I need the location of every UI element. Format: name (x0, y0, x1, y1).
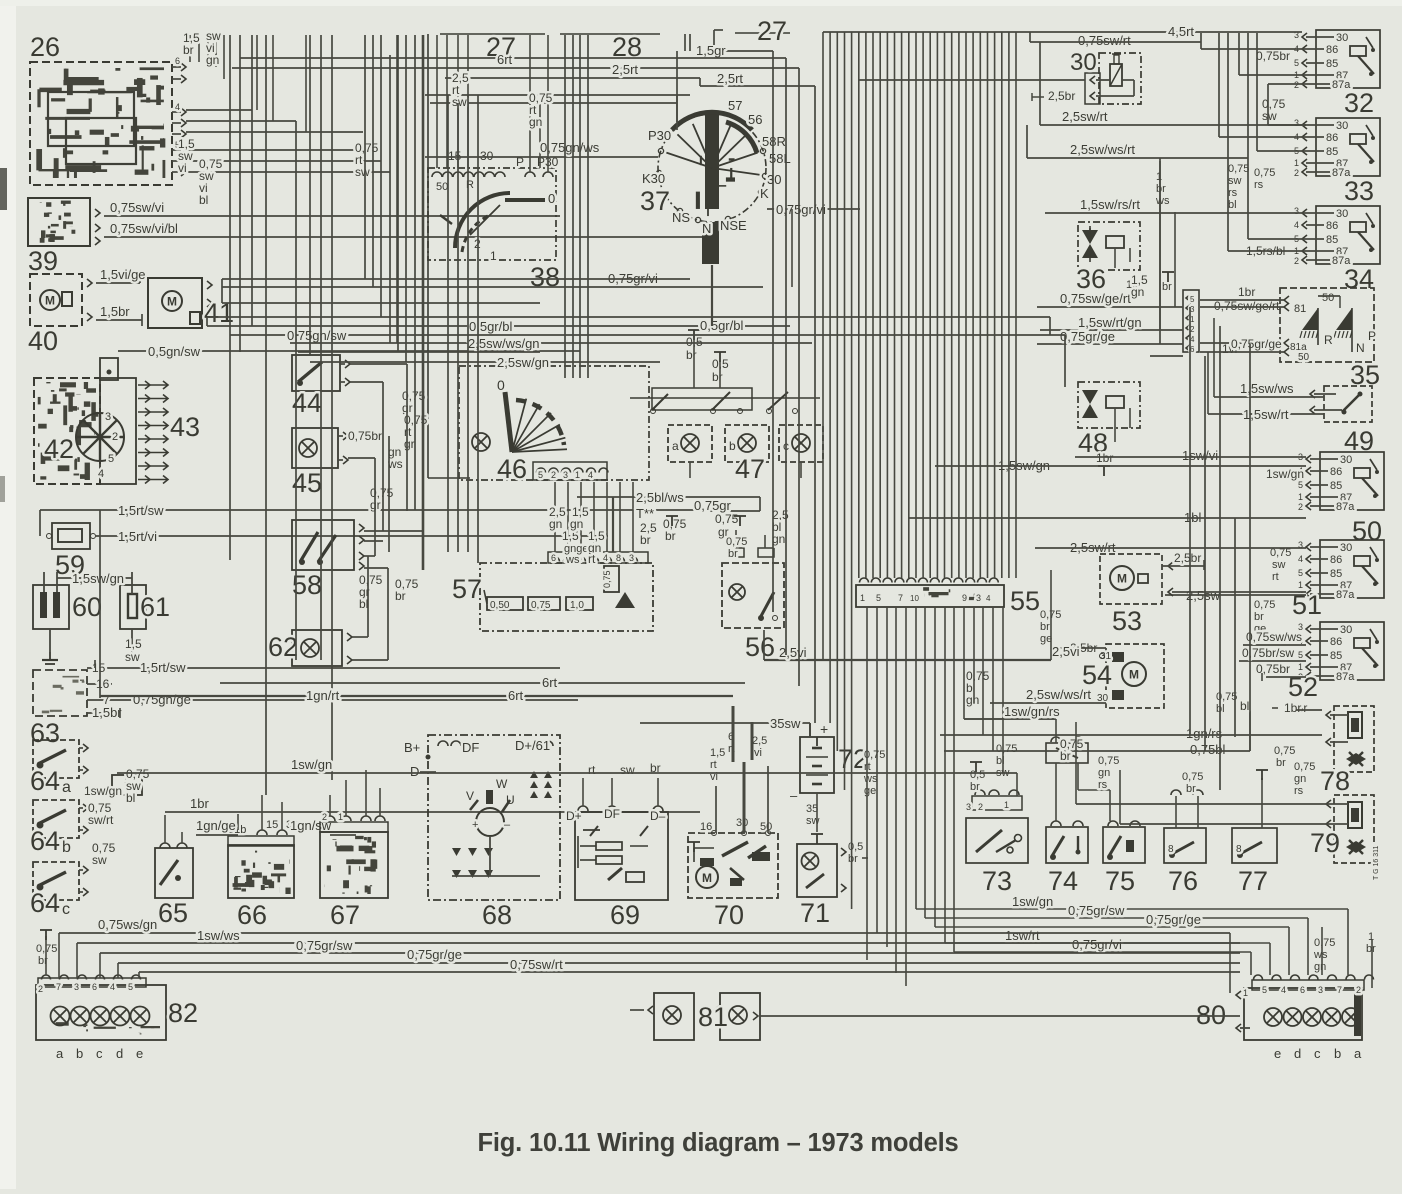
svg-text:D+/61: D+/61 (515, 738, 550, 753)
svg-text:3: 3 (966, 802, 971, 812)
svg-text:+: + (820, 721, 828, 737)
svg-text:64: 64 (30, 826, 60, 856)
svg-text:1: 1 (1298, 580, 1303, 590)
svg-text:64: 64 (30, 888, 60, 918)
svg-text:sw: sw (125, 650, 140, 664)
svg-text:1: 1 (490, 249, 497, 263)
svg-text:bl: bl (199, 193, 208, 207)
svg-text:br: br (395, 589, 406, 603)
svg-text:74: 74 (1048, 866, 1078, 896)
svg-text:77: 77 (1238, 866, 1268, 896)
svg-text:2,5bl/ws: 2,5bl/ws (636, 490, 684, 505)
svg-text:1,5rt/sw: 1,5rt/sw (140, 660, 186, 675)
svg-text:86: 86 (1326, 220, 1338, 232)
svg-text:rs: rs (1294, 785, 1304, 797)
svg-text:ws: ws (1313, 949, 1328, 961)
svg-text:53: 53 (1112, 606, 1142, 636)
svg-text:0,75: 0,75 (1228, 163, 1249, 175)
svg-text:30: 30 (736, 817, 748, 829)
svg-text:+: + (472, 819, 478, 831)
svg-text:87a: 87a (1336, 671, 1355, 683)
svg-text:gn: gn (1314, 961, 1326, 973)
svg-text:ws: ws (863, 773, 878, 785)
svg-text:0,75ws/gn: 0,75ws/gn (98, 917, 157, 932)
svg-text:33: 33 (1344, 176, 1374, 206)
svg-text:1: 1 (338, 812, 343, 822)
svg-text:4: 4 (110, 982, 115, 992)
svg-text:87a: 87a (1336, 501, 1355, 513)
svg-text:85: 85 (1330, 480, 1342, 492)
svg-text:4: 4 (1294, 220, 1299, 230)
svg-text:10: 10 (910, 594, 919, 603)
svg-text:1,0: 1,0 (570, 600, 584, 611)
svg-text:a: a (1354, 1046, 1362, 1061)
svg-text:DF: DF (462, 740, 479, 755)
svg-text:15: 15 (92, 661, 106, 675)
svg-text:8: 8 (1168, 844, 1174, 855)
svg-text:br: br (1156, 183, 1166, 195)
svg-text:1,5rt/vi: 1,5rt/vi (118, 529, 157, 544)
svg-text:br: br (1366, 943, 1376, 955)
svg-text:86: 86 (1330, 554, 1342, 566)
svg-text:rt: rt (1272, 571, 1279, 583)
svg-text:1sw/gn: 1sw/gn (1012, 894, 1053, 909)
svg-text:M: M (167, 295, 177, 309)
svg-text:gn: gn (966, 693, 979, 707)
svg-text:d: d (1294, 1046, 1301, 1061)
svg-text:P: P (1368, 329, 1376, 343)
svg-text:16: 16 (700, 821, 712, 833)
svg-text:e: e (1274, 1046, 1281, 1061)
svg-text:0,75: 0,75 (726, 536, 747, 548)
svg-text:55: 55 (1010, 586, 1040, 616)
svg-text:1: 1 (1156, 171, 1162, 183)
svg-text:rs: rs (1254, 179, 1264, 191)
svg-text:16: 16 (96, 677, 110, 691)
svg-text:0,75br: 0,75br (1256, 49, 1290, 63)
svg-text:50: 50 (436, 181, 448, 193)
svg-text:1,5sw/rs/rt: 1,5sw/rs/rt (1080, 197, 1140, 212)
svg-text:1,5vi/ge: 1,5vi/ge (100, 267, 146, 282)
svg-text:b: b (729, 439, 736, 453)
svg-text:b: b (76, 1046, 83, 1061)
svg-text:1sw/ws: 1sw/ws (197, 928, 240, 943)
svg-text:39: 39 (28, 246, 58, 276)
svg-text:27: 27 (757, 16, 787, 46)
svg-text:D+: D+ (566, 809, 582, 823)
svg-text:30: 30 (767, 172, 781, 187)
svg-text:N: N (1356, 341, 1365, 355)
svg-text:rt: rt (588, 763, 596, 777)
svg-text:br: br (970, 781, 980, 793)
svg-text:63: 63 (30, 718, 60, 748)
svg-text:58R: 58R (762, 134, 786, 149)
svg-text:0,5: 0,5 (848, 841, 863, 853)
svg-text:2: 2 (1298, 502, 1303, 512)
svg-text:ws: ws (1155, 195, 1170, 207)
svg-text:86: 86 (1326, 44, 1338, 56)
svg-text:85: 85 (1330, 650, 1342, 662)
svg-text:2: 2 (1294, 168, 1299, 178)
svg-text:1sw/gn: 1sw/gn (291, 757, 332, 772)
svg-text:R: R (1324, 333, 1333, 347)
svg-text:1: 1 (860, 593, 865, 603)
svg-text:64: 64 (30, 766, 60, 796)
svg-text:3: 3 (1294, 206, 1299, 216)
svg-text:69: 69 (610, 900, 640, 930)
svg-text:0: 0 (548, 191, 555, 206)
svg-text:1: 1 (1298, 492, 1303, 502)
svg-text:sw: sw (1272, 559, 1286, 571)
svg-text:85: 85 (1326, 58, 1338, 70)
svg-text:0,75sw/rt: 0,75sw/rt (1078, 33, 1131, 48)
svg-text:8: 8 (616, 553, 621, 563)
svg-text:56: 56 (745, 632, 775, 662)
svg-text:ws: ws (565, 554, 580, 566)
svg-text:57: 57 (728, 98, 742, 113)
svg-text:4: 4 (603, 553, 608, 563)
svg-text:D: D (410, 764, 419, 779)
svg-text:NSE: NSE (720, 218, 747, 233)
svg-text:82: 82 (168, 998, 198, 1028)
svg-text:gn: gn (206, 53, 219, 67)
svg-text:30: 30 (1336, 120, 1348, 132)
svg-text:6: 6 (175, 56, 180, 66)
svg-text:71: 71 (800, 898, 830, 928)
svg-text:5: 5 (1190, 295, 1195, 304)
svg-text:2,5sw/rt: 2,5sw/rt (1062, 109, 1108, 124)
svg-text:57: 57 (452, 574, 482, 604)
svg-text:rt: rt (710, 759, 717, 771)
svg-text:0,75sw/vi/bl: 0,75sw/vi/bl (110, 221, 178, 236)
svg-text:br: br (183, 43, 194, 57)
svg-text:gn: gn (772, 532, 785, 546)
svg-text:gn: gn (1098, 767, 1110, 779)
svg-text:2: 2 (1294, 80, 1299, 90)
svg-text:1,5sw/ws: 1,5sw/ws (1240, 381, 1294, 396)
svg-text:4: 4 (98, 468, 104, 480)
svg-text:T G 16 311: T G 16 311 (1373, 846, 1380, 880)
svg-text:br: br (728, 548, 738, 560)
svg-text:5: 5 (1298, 480, 1303, 490)
svg-text:sw: sw (1262, 109, 1277, 123)
svg-text:85: 85 (1330, 568, 1342, 580)
svg-text:0,75: 0,75 (602, 570, 612, 588)
svg-text:bl: bl (1240, 699, 1249, 713)
svg-text:15: 15 (448, 149, 462, 163)
svg-text:4: 4 (1298, 554, 1303, 564)
svg-text:br: br (1040, 621, 1050, 633)
svg-text:15: 15 (266, 819, 278, 831)
svg-text:0,75gr/vi: 0,75gr/vi (1072, 937, 1122, 952)
svg-text:2: 2 (551, 470, 556, 480)
svg-text:36: 36 (1076, 264, 1106, 294)
svg-text:4: 4 (986, 594, 991, 603)
svg-text:br: br (848, 853, 858, 865)
svg-text:B+: B+ (404, 740, 420, 755)
svg-text:0,75gr/sw: 0,75gr/sw (1068, 903, 1125, 918)
svg-text:37: 37 (640, 186, 670, 216)
svg-text:30: 30 (1336, 208, 1348, 220)
svg-text:gn: gn (570, 517, 583, 531)
svg-text:4: 4 (1281, 985, 1286, 995)
svg-text:30: 30 (480, 149, 494, 163)
svg-text:rs: rs (1098, 779, 1108, 791)
svg-text:81: 81 (698, 1002, 728, 1032)
svg-text:T**: T** (636, 506, 654, 521)
svg-text:30: 30 (1340, 624, 1352, 636)
svg-text:rs: rs (1228, 187, 1238, 199)
svg-text:6rt: 6rt (497, 52, 513, 67)
svg-text:gn: gn (1294, 773, 1306, 785)
svg-text:0,75gn/ge: 0,75gn/ge (133, 692, 191, 707)
svg-text:5: 5 (108, 453, 114, 465)
svg-text:6rt: 6rt (542, 675, 558, 690)
svg-text:1br: 1br (1284, 701, 1301, 715)
svg-text:gn: gn (1131, 285, 1144, 299)
svg-text:br: br (665, 529, 676, 543)
svg-text:0,75: 0,75 (1254, 167, 1275, 179)
svg-text:47: 47 (735, 454, 765, 484)
svg-text:32: 32 (1344, 88, 1374, 118)
svg-text:46: 46 (497, 454, 527, 484)
svg-text:0,75gr: 0,75gr (694, 498, 732, 513)
svg-text:1sw/gn: 1sw/gn (84, 784, 122, 798)
svg-text:40: 40 (28, 326, 58, 356)
svg-text:0,75gr/ge: 0,75gr/ge (1060, 329, 1115, 344)
svg-text:b: b (62, 839, 71, 856)
svg-text:54: 54 (1082, 660, 1112, 690)
svg-text:42: 42 (44, 434, 74, 464)
svg-text:1,5gr: 1,5gr (696, 43, 726, 58)
svg-text:35sw: 35sw (770, 716, 801, 731)
svg-text:30: 30 (1340, 454, 1352, 466)
svg-text:6: 6 (551, 553, 556, 563)
svg-text:1br: 1br (190, 796, 209, 811)
svg-text:1,5br: 1,5br (92, 705, 122, 720)
svg-text:0,5: 0,5 (970, 769, 985, 781)
svg-text:3: 3 (629, 553, 634, 563)
svg-text:1: 1 (1004, 800, 1009, 810)
svg-text:0,5gr/bl: 0,5gr/bl (700, 318, 743, 333)
svg-text:5: 5 (1298, 650, 1303, 660)
svg-text:e: e (136, 1046, 143, 1061)
svg-text:vi: vi (754, 747, 762, 759)
svg-text:70: 70 (714, 900, 744, 930)
svg-text:1br: 1br (1238, 285, 1255, 299)
svg-text:K30: K30 (642, 171, 665, 186)
svg-text:0,75gr/vi: 0,75gr/vi (776, 202, 826, 217)
svg-text:1,5rt/sw: 1,5rt/sw (118, 503, 164, 518)
svg-text:3: 3 (1318, 985, 1323, 995)
svg-text:67: 67 (330, 900, 360, 930)
svg-text:5: 5 (128, 982, 133, 992)
svg-text:73: 73 (982, 866, 1012, 896)
svg-text:26: 26 (30, 32, 60, 62)
svg-text:1: 1 (1243, 988, 1248, 998)
svg-text:0,75sw/ge/rt: 0,75sw/ge/rt (1214, 299, 1280, 313)
svg-text:1gn/rt: 1gn/rt (306, 688, 340, 703)
svg-text:50: 50 (1298, 352, 1310, 363)
svg-text:5: 5 (876, 593, 881, 603)
svg-text:sw: sw (355, 165, 370, 179)
svg-text:br: br (1276, 757, 1286, 769)
svg-text:sw/rt: sw/rt (88, 813, 114, 827)
svg-text:66: 66 (237, 900, 267, 930)
svg-text:0,5gr/bl: 0,5gr/bl (469, 319, 512, 334)
svg-text:86: 86 (1326, 132, 1338, 144)
svg-text:1,5br: 1,5br (100, 304, 130, 319)
svg-text:7: 7 (56, 982, 61, 992)
svg-text:5: 5 (1298, 568, 1303, 578)
svg-text:0,75: 0,75 (1274, 745, 1295, 757)
svg-text:50: 50 (1322, 292, 1334, 304)
svg-text:1sw/gn: 1sw/gn (1266, 467, 1304, 481)
svg-text:0,75: 0,75 (1182, 771, 1203, 783)
svg-text:1: 1 (1368, 931, 1374, 943)
svg-text:1,5sw/rt/gn: 1,5sw/rt/gn (1078, 315, 1142, 330)
svg-text:M: M (1117, 572, 1127, 586)
svg-text:gn: gn (549, 517, 562, 531)
svg-text:2,5br: 2,5br (1048, 89, 1075, 103)
svg-text:c: c (62, 901, 70, 918)
svg-text:br: br (1060, 749, 1071, 763)
svg-text:0,75: 0,75 (1314, 937, 1335, 949)
svg-text:8: 8 (1236, 844, 1242, 855)
svg-text:M: M (1129, 668, 1139, 682)
svg-text:0,75: 0,75 (1294, 761, 1315, 773)
svg-text:0,75gr/sw: 0,75gr/sw (296, 938, 353, 953)
svg-text:sw: sw (1228, 175, 1242, 187)
svg-text:6: 6 (1300, 985, 1305, 995)
svg-text:3: 3 (105, 411, 111, 423)
svg-text:65: 65 (158, 898, 188, 928)
svg-text:56: 56 (748, 112, 762, 127)
svg-text:2,5vi: 2,5vi (1052, 644, 1080, 659)
svg-text:0,75br: 0,75br (348, 429, 382, 443)
svg-text:N: N (702, 221, 711, 236)
svg-text:60: 60 (72, 592, 102, 622)
svg-text:79: 79 (1310, 828, 1340, 858)
svg-text:sw: sw (92, 853, 107, 867)
svg-text:2,5rt: 2,5rt (612, 62, 638, 77)
svg-text:85: 85 (1326, 146, 1338, 158)
svg-text:2: 2 (322, 812, 327, 822)
svg-text:D–: D– (650, 809, 666, 823)
svg-text:br: br (1254, 611, 1264, 623)
svg-text:6: 6 (92, 982, 97, 992)
svg-text:0,75: 0,75 (996, 743, 1017, 755)
svg-text:2,5br: 2,5br (1174, 551, 1201, 565)
svg-text:34: 34 (1344, 264, 1374, 294)
svg-text:80: 80 (1196, 1000, 1226, 1030)
svg-text:87a: 87a (1336, 589, 1355, 601)
svg-text:sw: sw (452, 95, 467, 109)
svg-text:bl: bl (359, 597, 368, 611)
svg-text:NS: NS (672, 210, 690, 225)
svg-text:0,75sw/vi: 0,75sw/vi (110, 200, 164, 215)
svg-text:Fig. 10.11 Wiring diagram – 19: Fig. 10.11 Wiring diagram – 1973 models (478, 1129, 959, 1157)
svg-text:b: b (1334, 1046, 1341, 1061)
svg-text:6rt: 6rt (508, 688, 524, 703)
svg-text:4: 4 (175, 102, 180, 112)
svg-text:P30: P30 (648, 128, 671, 143)
svg-text:7: 7 (1337, 985, 1342, 995)
svg-text:2,5: 2,5 (752, 735, 767, 747)
svg-text:bl: bl (1228, 199, 1237, 211)
svg-text:4: 4 (588, 470, 593, 480)
svg-text:ge: ge (864, 785, 876, 797)
svg-text:2: 2 (1294, 256, 1299, 266)
svg-text:30: 30 (1340, 542, 1352, 554)
svg-text:0,75: 0,75 (1254, 599, 1275, 611)
svg-text:2,5rt: 2,5rt (717, 71, 743, 86)
svg-text:1sw/gn/rs: 1sw/gn/rs (1004, 704, 1060, 719)
svg-text:1gn/ge: 1gn/ge (196, 818, 236, 833)
svg-text:1: 1 (575, 470, 580, 480)
svg-text:–: – (504, 819, 511, 831)
svg-text:81: 81 (1294, 303, 1306, 315)
svg-text:0,75gr/ge: 0,75gr/ge (1231, 337, 1282, 351)
svg-text:V: V (466, 789, 474, 803)
svg-text:0,75: 0,75 (531, 600, 551, 611)
svg-text:DF: DF (604, 807, 620, 821)
svg-text:3: 3 (563, 470, 568, 480)
svg-text:vi: vi (178, 161, 187, 175)
svg-text:br: br (640, 533, 651, 547)
svg-text:1,5: 1,5 (710, 747, 725, 759)
svg-text:br: br (712, 370, 723, 384)
svg-text:2: 2 (38, 984, 43, 994)
svg-text:M: M (45, 294, 55, 308)
svg-text:5: 5 (1262, 985, 1267, 995)
svg-text:0,50: 0,50 (490, 600, 510, 611)
svg-text:1sw/vi: 1sw/vi (1182, 448, 1218, 463)
svg-text:W: W (496, 777, 508, 791)
svg-text:0,75: 0,75 (1098, 755, 1119, 767)
svg-text:a: a (672, 439, 679, 453)
svg-text:c: c (1314, 1046, 1321, 1061)
svg-text:75: 75 (1105, 866, 1135, 896)
svg-text:86: 86 (1330, 636, 1342, 648)
svg-text:0: 0 (497, 377, 505, 393)
svg-text:br: br (1186, 783, 1196, 795)
svg-text:bl: bl (126, 791, 135, 805)
svg-text:a: a (62, 779, 71, 796)
svg-text:0,75: 0,75 (715, 512, 739, 526)
svg-text:2: 2 (112, 431, 118, 443)
svg-text:43: 43 (170, 412, 200, 442)
svg-text:0,75br: 0,75br (1256, 662, 1290, 676)
svg-text:0,5gn/sw: 0,5gn/sw (148, 344, 201, 359)
svg-text:2: 2 (1356, 985, 1361, 995)
svg-text:0,75sw/rt: 0,75sw/rt (510, 957, 563, 972)
svg-text:2,5sw/ws/rt: 2,5sw/ws/rt (1026, 687, 1091, 702)
svg-text:rt: rt (588, 552, 596, 566)
svg-text:30: 30 (1070, 49, 1097, 76)
svg-text:78: 78 (1320, 766, 1350, 796)
svg-text:2: 2 (978, 802, 983, 812)
svg-text:1: 1 (1294, 158, 1299, 168)
svg-text:30: 30 (1336, 32, 1348, 44)
svg-text:86: 86 (1330, 466, 1342, 478)
svg-text:gr: gr (404, 437, 415, 451)
svg-text:5: 5 (1294, 58, 1299, 68)
svg-text:br: br (686, 348, 697, 362)
svg-text:85: 85 (1326, 234, 1338, 246)
svg-text:1br: 1br (1096, 451, 1113, 465)
svg-text:1,5sw/gn: 1,5sw/gn (72, 571, 124, 586)
